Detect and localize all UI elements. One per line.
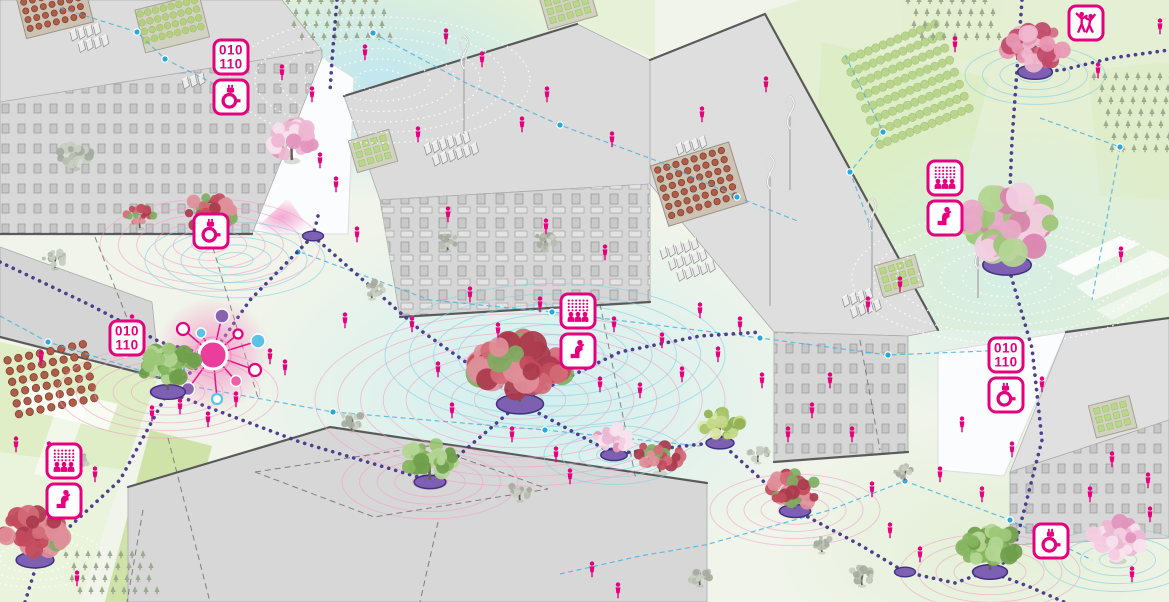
sensor-node-dot	[880, 129, 886, 135]
hub-satellite-node	[212, 394, 222, 404]
sensor-node-dot	[45, 339, 51, 345]
hub-satellite-node	[215, 309, 229, 323]
sensor-node-dot	[885, 352, 891, 358]
badge-group	[1069, 6, 1103, 40]
badge-tile-audience	[47, 444, 81, 478]
hub-satellite-node	[251, 334, 265, 348]
badge-tile-plug	[1034, 524, 1068, 558]
sensor-node-dot	[1117, 144, 1123, 150]
sensor-node-dot	[757, 335, 763, 341]
sensor-node-dot	[330, 409, 336, 415]
sensor-node-dot	[1007, 517, 1013, 523]
sensor-node-dot	[847, 169, 853, 175]
hub-satellite-node	[231, 376, 242, 387]
badge-tile-plug	[214, 80, 248, 114]
tree-network-node	[895, 567, 916, 577]
sensor-node-dot	[557, 122, 563, 128]
sensor-node-dot	[134, 29, 140, 35]
sensor-node-dot	[370, 30, 376, 36]
badge-tile-plug	[989, 378, 1023, 412]
sensor-node-dot	[542, 427, 548, 433]
sensor-node-dot	[162, 56, 168, 62]
badge-group	[1034, 524, 1068, 558]
badge-group: 010110	[110, 321, 144, 355]
city-diagram-canvas: 010110010110010110	[0, 0, 1169, 602]
hub-satellite-node	[249, 364, 261, 376]
badge-tile-audience	[561, 294, 595, 328]
badge-group	[194, 214, 228, 248]
isometric-city-diagram: 010110010110010110	[0, 0, 1169, 602]
badge-tile-audience	[928, 161, 962, 195]
badge-code-line2: 110	[219, 57, 242, 72]
badge-code-line2: 110	[994, 355, 1017, 370]
badge-code-line1: 010	[219, 43, 243, 58]
badge-code-line1: 010	[994, 341, 1018, 356]
hub-satellite-node	[234, 330, 243, 339]
hub-satellite-node	[196, 328, 206, 338]
hub-center-node	[199, 341, 227, 369]
badge-code-line1: 010	[115, 324, 139, 339]
badge-tile-dancing	[1069, 6, 1103, 40]
badge-tile-plug	[194, 214, 228, 248]
badge-code-line2: 110	[115, 338, 138, 353]
sensor-node-dot	[549, 309, 555, 315]
hub-satellite-node	[177, 323, 189, 335]
sensor-node-dot	[734, 194, 740, 200]
tree-network-node	[303, 231, 324, 241]
